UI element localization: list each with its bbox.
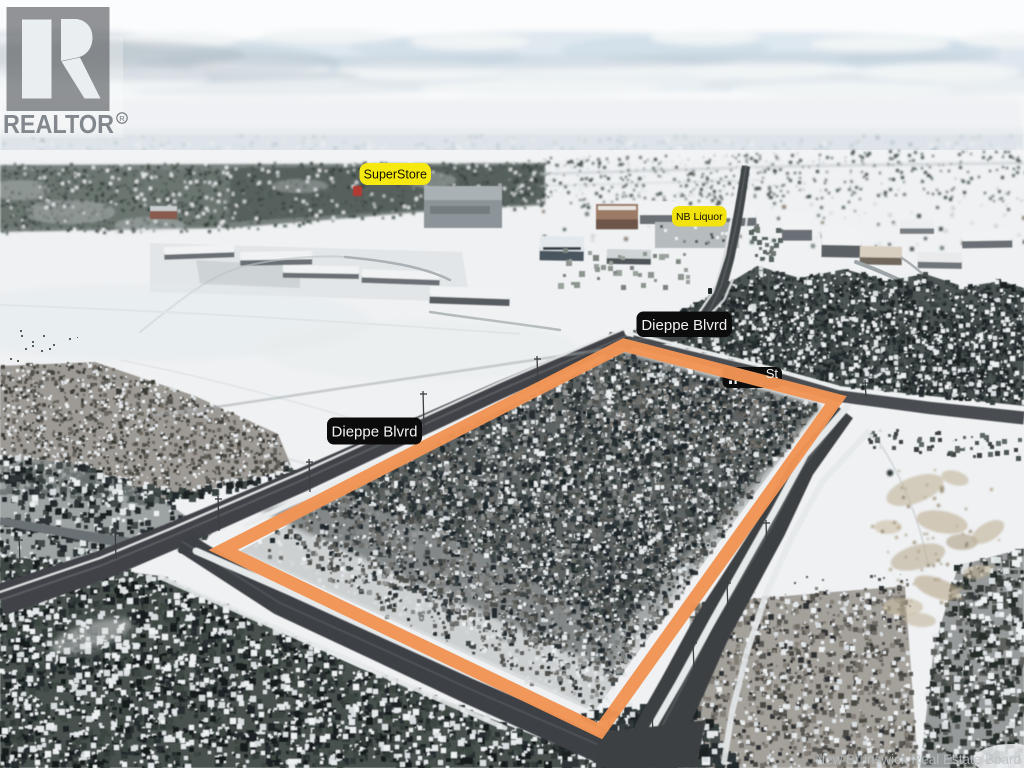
svg-text:New Brunswick Real Estate Boar: New Brunswick Real Estate Board (815, 752, 1021, 767)
svg-text:St: St (766, 366, 779, 381)
svg-text:NB Liquor: NB Liquor (676, 211, 723, 223)
svg-text:Dieppe Blvrd: Dieppe Blvrd (641, 317, 727, 334)
svg-text:REALTOR: REALTOR (3, 111, 114, 139)
svg-text:R: R (119, 114, 125, 123)
svg-text:SuperStore: SuperStore (364, 168, 427, 182)
svg-text:Dieppe Blvrd: Dieppe Blvrd (332, 424, 418, 441)
